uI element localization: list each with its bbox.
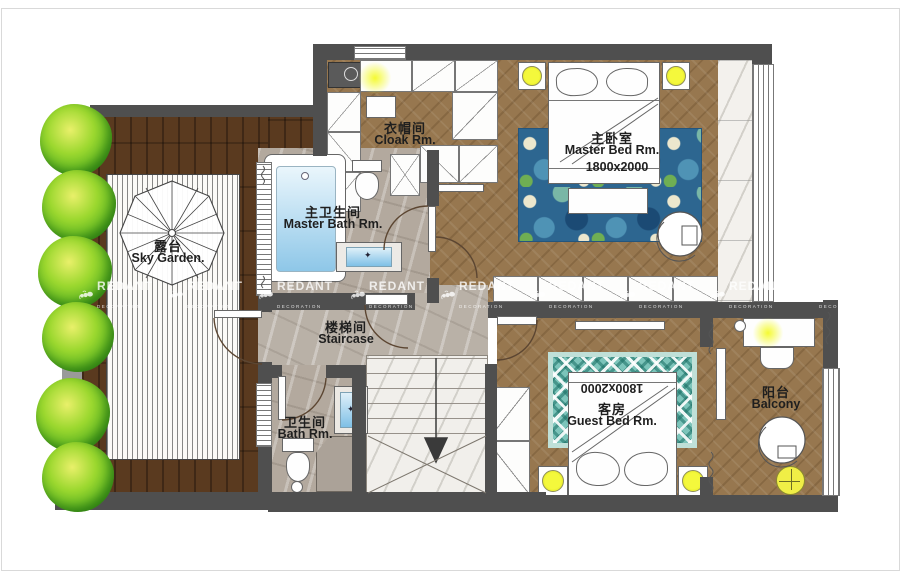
room-label-guest-bed-en: Guest Bed Rm. xyxy=(567,414,657,428)
door-leaf xyxy=(214,310,262,318)
room-label-master-bed-en: Master Bed Rm. xyxy=(565,143,659,157)
toilet-bowl xyxy=(286,452,310,482)
wall xyxy=(427,150,439,206)
bed-size-label: 1800x2000 xyxy=(586,160,649,174)
stair-steps xyxy=(367,358,487,434)
room-label-bath-en: Bath Rm. xyxy=(278,427,333,441)
wardrobe xyxy=(327,92,361,132)
faucet-icon: ✦ xyxy=(364,250,372,261)
room-label-balcony-en: Balcony xyxy=(752,397,801,411)
cloak-counter xyxy=(328,62,362,88)
ceiling-lamp-icon xyxy=(666,66,686,86)
window xyxy=(822,368,840,496)
wardrobe xyxy=(455,60,498,92)
table-cross xyxy=(791,469,793,490)
wall xyxy=(258,445,272,495)
door-leaf xyxy=(428,206,436,252)
window xyxy=(354,46,406,60)
light-glow xyxy=(358,62,392,94)
wall xyxy=(700,317,713,347)
floor-plan: ✦ ✦ xyxy=(0,0,900,574)
bed-bench xyxy=(568,188,648,214)
wardrobe xyxy=(493,276,538,302)
wardrobe xyxy=(412,60,455,92)
stool xyxy=(366,96,396,118)
wardrobe xyxy=(459,145,498,183)
shelf xyxy=(575,321,665,330)
light-glow xyxy=(752,318,784,348)
ceiling-lamp-icon xyxy=(542,470,564,492)
desk-chair xyxy=(760,347,794,369)
wall xyxy=(258,362,272,383)
door-leaf xyxy=(497,316,537,325)
wardrobe xyxy=(673,276,718,302)
room-label-master-bath-en: Master Bath Rm. xyxy=(284,217,383,231)
wall xyxy=(326,365,352,378)
sliding-door-panel xyxy=(716,348,726,420)
room-label-cloak-en: Cloak Rm. xyxy=(374,133,435,147)
table-cross xyxy=(779,481,800,483)
room-label-sky-garden-en: Sky Garden. xyxy=(132,251,205,265)
window xyxy=(752,64,774,302)
wardrobe xyxy=(420,145,459,183)
bed-sheet-line xyxy=(549,100,659,101)
wardrobe xyxy=(452,92,498,140)
wall xyxy=(90,105,315,117)
side-table xyxy=(776,466,805,495)
ceiling-lamp-icon xyxy=(522,66,542,86)
shower-cabinet xyxy=(390,154,420,196)
wall xyxy=(427,278,439,303)
toilet-tank xyxy=(352,160,382,172)
room-label-staircase-en: Staircase xyxy=(318,332,374,346)
wall xyxy=(700,477,713,495)
bay-window-sill xyxy=(718,60,752,303)
wall xyxy=(313,58,327,156)
door-leaf xyxy=(365,294,408,305)
wall xyxy=(352,365,366,495)
sink-icon xyxy=(344,67,358,81)
wardrobe xyxy=(538,276,583,302)
wall xyxy=(268,492,546,512)
wall xyxy=(823,300,838,368)
wall xyxy=(546,495,838,512)
wall xyxy=(485,364,497,497)
shelf xyxy=(432,184,484,192)
window xyxy=(256,162,272,296)
window xyxy=(256,383,272,447)
drain-icon xyxy=(301,172,309,180)
wardrobe xyxy=(583,276,628,302)
knob-icon xyxy=(734,320,746,332)
bed-size-label-rotated: 1800x2000 xyxy=(581,381,644,395)
wall xyxy=(488,302,838,318)
wardrobe xyxy=(628,276,673,302)
toilet-bowl xyxy=(355,172,379,200)
